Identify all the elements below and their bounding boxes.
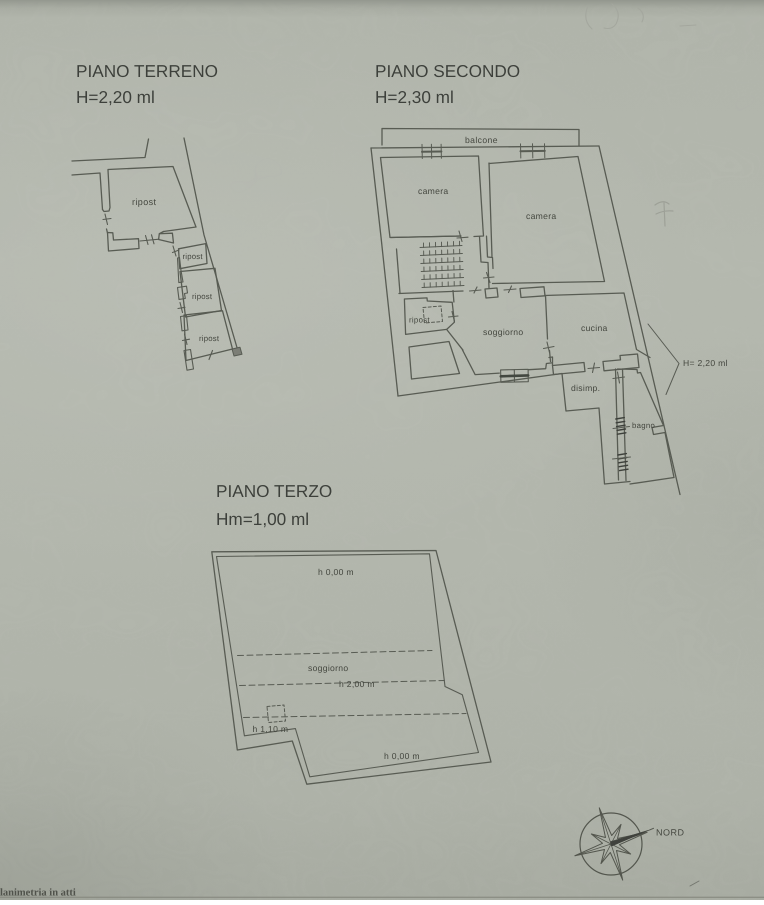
svg-text:h 0,00 m: h 0,00 m: [384, 751, 420, 761]
svg-text:ripost: ripost: [199, 334, 220, 343]
svg-text:h 1,10 m: h 1,10 m: [253, 724, 289, 734]
svg-text:H=2,30 ml: H=2,30 ml: [375, 87, 454, 107]
svg-text:ripost: ripost: [192, 292, 213, 301]
svg-text:balcone: balcone: [465, 135, 498, 145]
svg-text:Hm=1,00 ml: Hm=1,00 ml: [216, 509, 309, 529]
svg-text:soggiorno: soggiorno: [308, 663, 348, 673]
svg-text:ripost: ripost: [132, 197, 157, 207]
svg-text:ripost: ripost: [183, 252, 204, 261]
svg-text:h 0,00 m: h 0,00 m: [318, 567, 354, 577]
svg-text:camera: camera: [418, 186, 448, 196]
svg-text:cucina: cucina: [581, 323, 608, 333]
svg-text:PIANO SECONDO: PIANO SECONDO: [375, 61, 520, 81]
svg-text:soggiorno: soggiorno: [483, 327, 523, 337]
svg-text:H= 2,20 ml: H= 2,20 ml: [683, 358, 728, 368]
svg-text:PIANO TERZO: PIANO TERZO: [216, 481, 332, 501]
svg-text:PIANO TERRENO: PIANO TERRENO: [76, 61, 218, 81]
svg-text:H=2,20 ml: H=2,20 ml: [76, 87, 155, 107]
svg-text:bagno: bagno: [632, 421, 656, 430]
svg-text:NORD: NORD: [656, 827, 685, 837]
svg-text:disimp.: disimp.: [571, 383, 600, 393]
svg-text:camera: camera: [526, 211, 556, 221]
svg-text:h 2,00 m: h 2,00 m: [339, 679, 375, 689]
